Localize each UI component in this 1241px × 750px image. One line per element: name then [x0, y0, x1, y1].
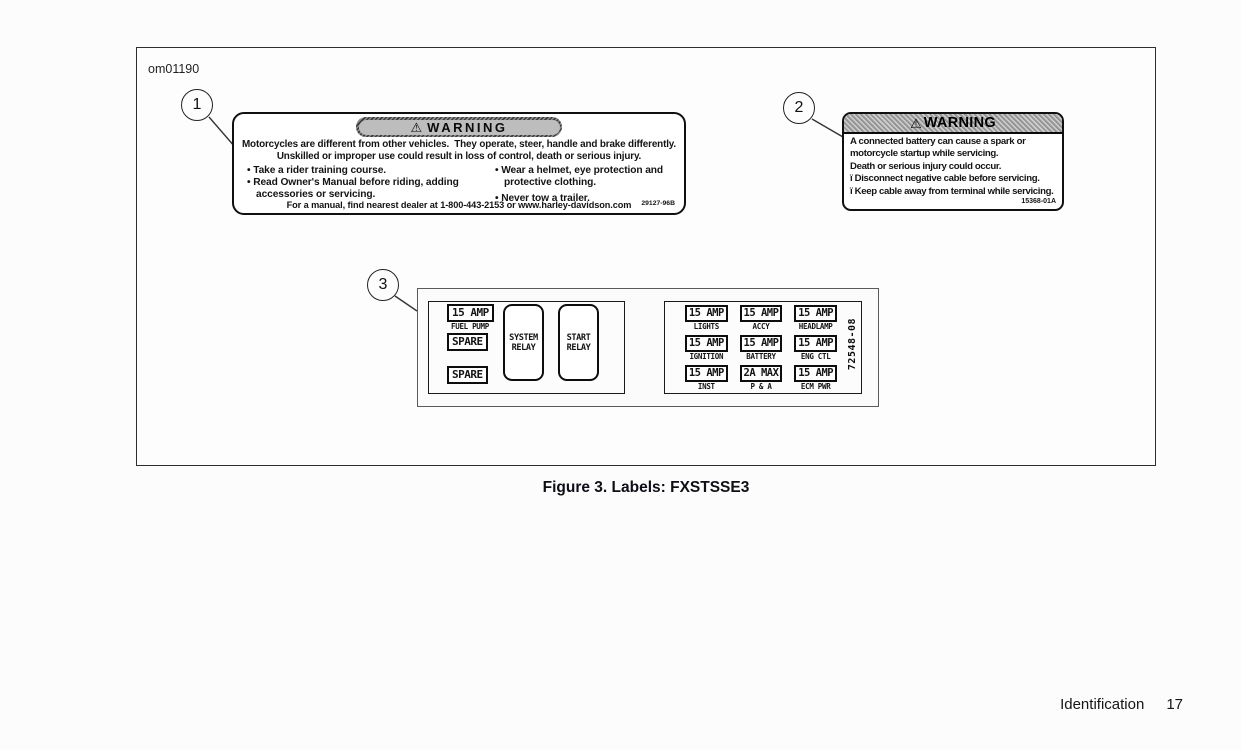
- fuse-panel-right: 15 AMP LIGHTS 15 AMP ACCY 15 AMP HEADLAM…: [664, 301, 862, 394]
- callout-1-number: 1: [193, 96, 202, 114]
- figure-code: om01190: [148, 62, 199, 76]
- warning2-body: A connected battery can cause a spark or…: [844, 134, 1062, 198]
- fuse-box: 15 AMP: [740, 335, 783, 352]
- warning-title: WARNING: [427, 120, 507, 135]
- warning1-footer: For a manual, find nearest dealer at 1-8…: [234, 200, 684, 210]
- warning2-para2: Death or serious injury could occur.: [850, 161, 1057, 173]
- fuse-box: 15 AMP: [447, 304, 494, 322]
- fuse-name: ECM PWR: [792, 382, 839, 391]
- relay-label-line: RELAY: [567, 343, 591, 353]
- warning2-part-number: 15368-01A: [1021, 198, 1056, 205]
- fuse-name: P & A: [738, 382, 785, 391]
- callout-3: 3: [367, 269, 399, 301]
- bullet-item: • Take a rider training course.: [247, 165, 477, 177]
- relay-label-line: SYSTEM: [509, 333, 538, 343]
- fuse-name: ACCY: [738, 322, 785, 331]
- callout-2: 2: [783, 92, 815, 124]
- warning1-bullets-left: • Take a rider training course. • Read O…: [247, 165, 477, 205]
- fuse-name: INST: [683, 382, 730, 391]
- fuse-box: 15 AMP: [794, 305, 837, 322]
- fuse-name: BATTERY: [738, 352, 785, 361]
- bullet-item: • Read Owner's Manual before riding, add…: [247, 177, 477, 201]
- warning1-part-number: 29127-96B: [641, 200, 675, 207]
- fuse-name: IGNITION: [683, 352, 730, 361]
- fuse-cell: 15 AMP HEADLAMP: [792, 303, 839, 333]
- bullet-item: • Wear a helmet, eye protection and prot…: [495, 165, 680, 189]
- fuse-box-spare: SPARE: [447, 366, 488, 384]
- warning1-line2: Unskilled or improper use could result i…: [234, 151, 684, 163]
- figure-caption: Figure 3. Labels: FXSTSSE3: [136, 479, 1156, 497]
- fuse-name: FUEL PUMP: [429, 322, 511, 331]
- fuse-cell: 15 AMP ACCY: [738, 303, 785, 333]
- bullet-text: Read Owner's Manual before riding, addin…: [253, 177, 459, 200]
- bullet-item: ï Disconnect negative cable before servi…: [850, 173, 1056, 185]
- system-relay-box: SYSTEM RELAY: [503, 304, 544, 381]
- fuse-box-spare: SPARE: [447, 333, 488, 351]
- fuse-panel-left: 15 AMP FUEL PUMP SPARE SPARE SYSTEM RELA…: [428, 301, 625, 394]
- footer-section-title: Identification: [1060, 696, 1144, 713]
- relay-label-line: START: [567, 333, 591, 343]
- warning-label-general: ⚠ WARNING Motorcycles are different from…: [232, 112, 686, 215]
- bullet-marker: ï: [850, 173, 852, 184]
- fuse-box: 15 AMP: [794, 365, 837, 382]
- fuse-cell: 15 AMP LIGHTS: [683, 303, 730, 333]
- bullet-text: Keep cable away from terminal while serv…: [855, 186, 1054, 197]
- bullet-text: Take a rider training course.: [253, 165, 386, 176]
- fuse-grid: 15 AMP LIGHTS 15 AMP ACCY 15 AMP HEADLAM…: [683, 303, 839, 393]
- warning-title: WARNING: [924, 115, 996, 131]
- bullet-item: ï Keep cable away from terminal while se…: [850, 186, 1056, 198]
- fuse-box: 15 AMP: [794, 335, 837, 352]
- fuse-cell: 15 AMP ENG CTL: [792, 333, 839, 363]
- bullet-marker: •: [495, 165, 498, 176]
- fuse-box: 15 AMP: [685, 305, 728, 322]
- fuse-box: 2A MAX: [740, 365, 783, 382]
- page-footer: Identification 17: [1060, 696, 1183, 713]
- callout-1: 1: [181, 89, 213, 121]
- warning-triangle-icon: ⚠: [910, 117, 922, 130]
- warning1-line1: Motorcycles are different from other veh…: [234, 139, 684, 151]
- fuse-label-part-number: 72548-08: [847, 306, 859, 382]
- fuse-cell: 15 AMP ECM PWR: [792, 363, 839, 393]
- bullet-marker: ï: [850, 186, 852, 197]
- callout-2-number: 2: [795, 99, 804, 117]
- warning-header-pill: ⚠ WARNING: [356, 117, 562, 137]
- fuse-cell: 15 AMP INST: [683, 363, 730, 393]
- warning2-header-band: ⚠ WARNING: [844, 114, 1062, 134]
- fuse-name: ENG CTL: [792, 352, 839, 361]
- fuse-cell: 15 AMP IGNITION: [683, 333, 730, 363]
- start-relay-box: START RELAY: [558, 304, 599, 381]
- fuse-box: 15 AMP: [685, 335, 728, 352]
- fuse-cell: 15 AMP BATTERY: [738, 333, 785, 363]
- fuse-cell: 2A MAX P & A: [738, 363, 785, 393]
- fuse-name: LIGHTS: [683, 322, 730, 331]
- warning2-para1: A connected battery can cause a spark or…: [850, 136, 1052, 161]
- bullet-marker: •: [247, 165, 250, 176]
- fuse-box: 15 AMP: [740, 305, 783, 322]
- warning-header-inner: ⚠ WARNING: [359, 120, 560, 135]
- manual-page: om01190 1 2 3 ⚠ WARNING Motorcycles are …: [0, 0, 1241, 750]
- footer-page-number: 17: [1166, 696, 1183, 713]
- callout-3-number: 3: [379, 276, 388, 294]
- fuse-block-label: 15 AMP FUEL PUMP SPARE SPARE SYSTEM RELA…: [417, 288, 879, 407]
- fuse-name: HEADLAMP: [792, 322, 839, 331]
- warning-triangle-icon: ⚠: [411, 121, 423, 134]
- bullet-text: Wear a helmet, eye protection and protec…: [501, 165, 663, 188]
- bullet-text: Disconnect negative cable before servici…: [855, 173, 1040, 184]
- warning-label-battery: ⚠ WARNING A connected battery can cause …: [842, 112, 1064, 211]
- warning1-bullets-right: • Wear a helmet, eye protection and prot…: [495, 165, 680, 205]
- bullet-marker: •: [247, 177, 250, 188]
- fuse-box: 15 AMP: [685, 365, 728, 382]
- warning1-bullet-columns: • Take a rider training course. • Read O…: [234, 165, 684, 205]
- relay-label-line: RELAY: [512, 343, 536, 353]
